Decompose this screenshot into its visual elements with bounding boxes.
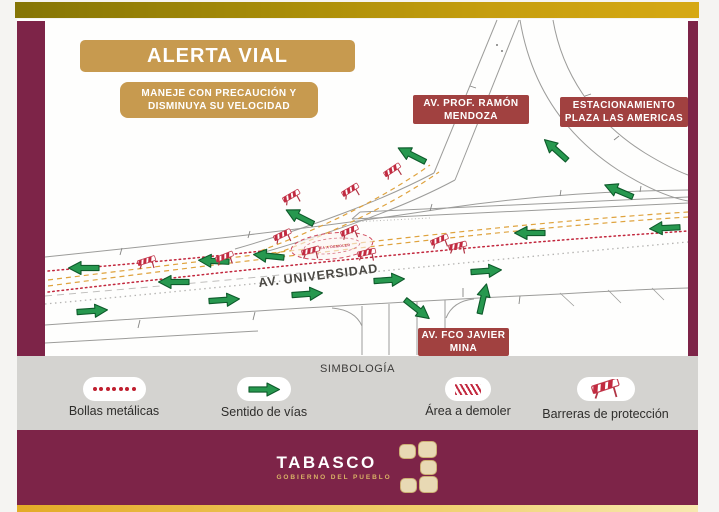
label-av-prof-ramon-mendoza: AV. PROF. RAMÓN MENDOZA xyxy=(413,95,529,124)
government-logo: TABASCO GOBIERNO DEL PUEBLO xyxy=(17,430,698,505)
label-av-fco-javier-mina: AV. FCO JAVIER MINA xyxy=(418,328,509,356)
legend-strip: SIMBOLOGÍA Bollas metálicas Sentido de v… xyxy=(17,356,698,430)
label-line: PLAZA LAS AMERICAS xyxy=(563,112,685,125)
frame-top-gold-bar xyxy=(15,2,699,18)
precaution-line-2: DISMINUYA SU VELOCIDAD xyxy=(120,100,318,113)
brand-name: TABASCO xyxy=(276,454,391,472)
direction-arrow-icon xyxy=(237,377,291,401)
legend-item-bollards: Bollas metálicas xyxy=(44,377,184,418)
frame-left-maroon-bar xyxy=(17,21,45,356)
legend-label: Sentido de vías xyxy=(194,405,334,419)
bollards-icon xyxy=(83,377,146,401)
precaution-banner: MANEJE CON PRECAUCIÓN Y DISMINUYA SU VEL… xyxy=(120,82,318,118)
label-line: MINA xyxy=(421,342,506,355)
legend-item-demolition: Área a demoler xyxy=(398,377,538,418)
label-line: MENDOZA xyxy=(416,110,526,123)
label-line: AV. FCO JAVIER xyxy=(421,329,506,342)
legend-label: Área a demoler xyxy=(398,404,538,418)
label-line: ESTACIONAMIENTO xyxy=(563,99,685,112)
alert-title: ALERTA VIAL xyxy=(147,45,288,67)
alert-banner: ALERTA VIAL xyxy=(80,40,355,72)
label-line: AV. PROF. RAMÓN xyxy=(416,97,526,110)
legend-title: SIMBOLOGÍA xyxy=(17,363,698,375)
demolition-area-icon xyxy=(445,377,491,401)
label-estacionamiento-plaza-las-americas: ESTACIONAMIENTO PLAZA LAS AMERICAS xyxy=(560,97,688,127)
barrier-icon xyxy=(577,377,635,401)
legend-item-barriers: Barreras de protección xyxy=(523,377,688,421)
traffic-alert-poster: ÁREA A DEMOLER AV. UNIVERSIDAD xyxy=(0,0,719,512)
legend-label: Bollas metálicas xyxy=(44,404,184,418)
legend-label: Barreras de protección xyxy=(523,407,688,421)
tabasco-logo-tiles xyxy=(399,441,439,494)
brand-tagline: GOBIERNO DEL PUEBLO xyxy=(276,474,391,481)
legend-item-direction: Sentido de vías xyxy=(194,377,334,419)
footer-band: TABASCO GOBIERNO DEL PUEBLO xyxy=(17,430,698,505)
frame-bottom-gold-bar xyxy=(17,505,698,512)
frame-right-maroon-bar xyxy=(688,21,698,356)
precaution-line-1: MANEJE CON PRECAUCIÓN Y xyxy=(120,87,318,100)
